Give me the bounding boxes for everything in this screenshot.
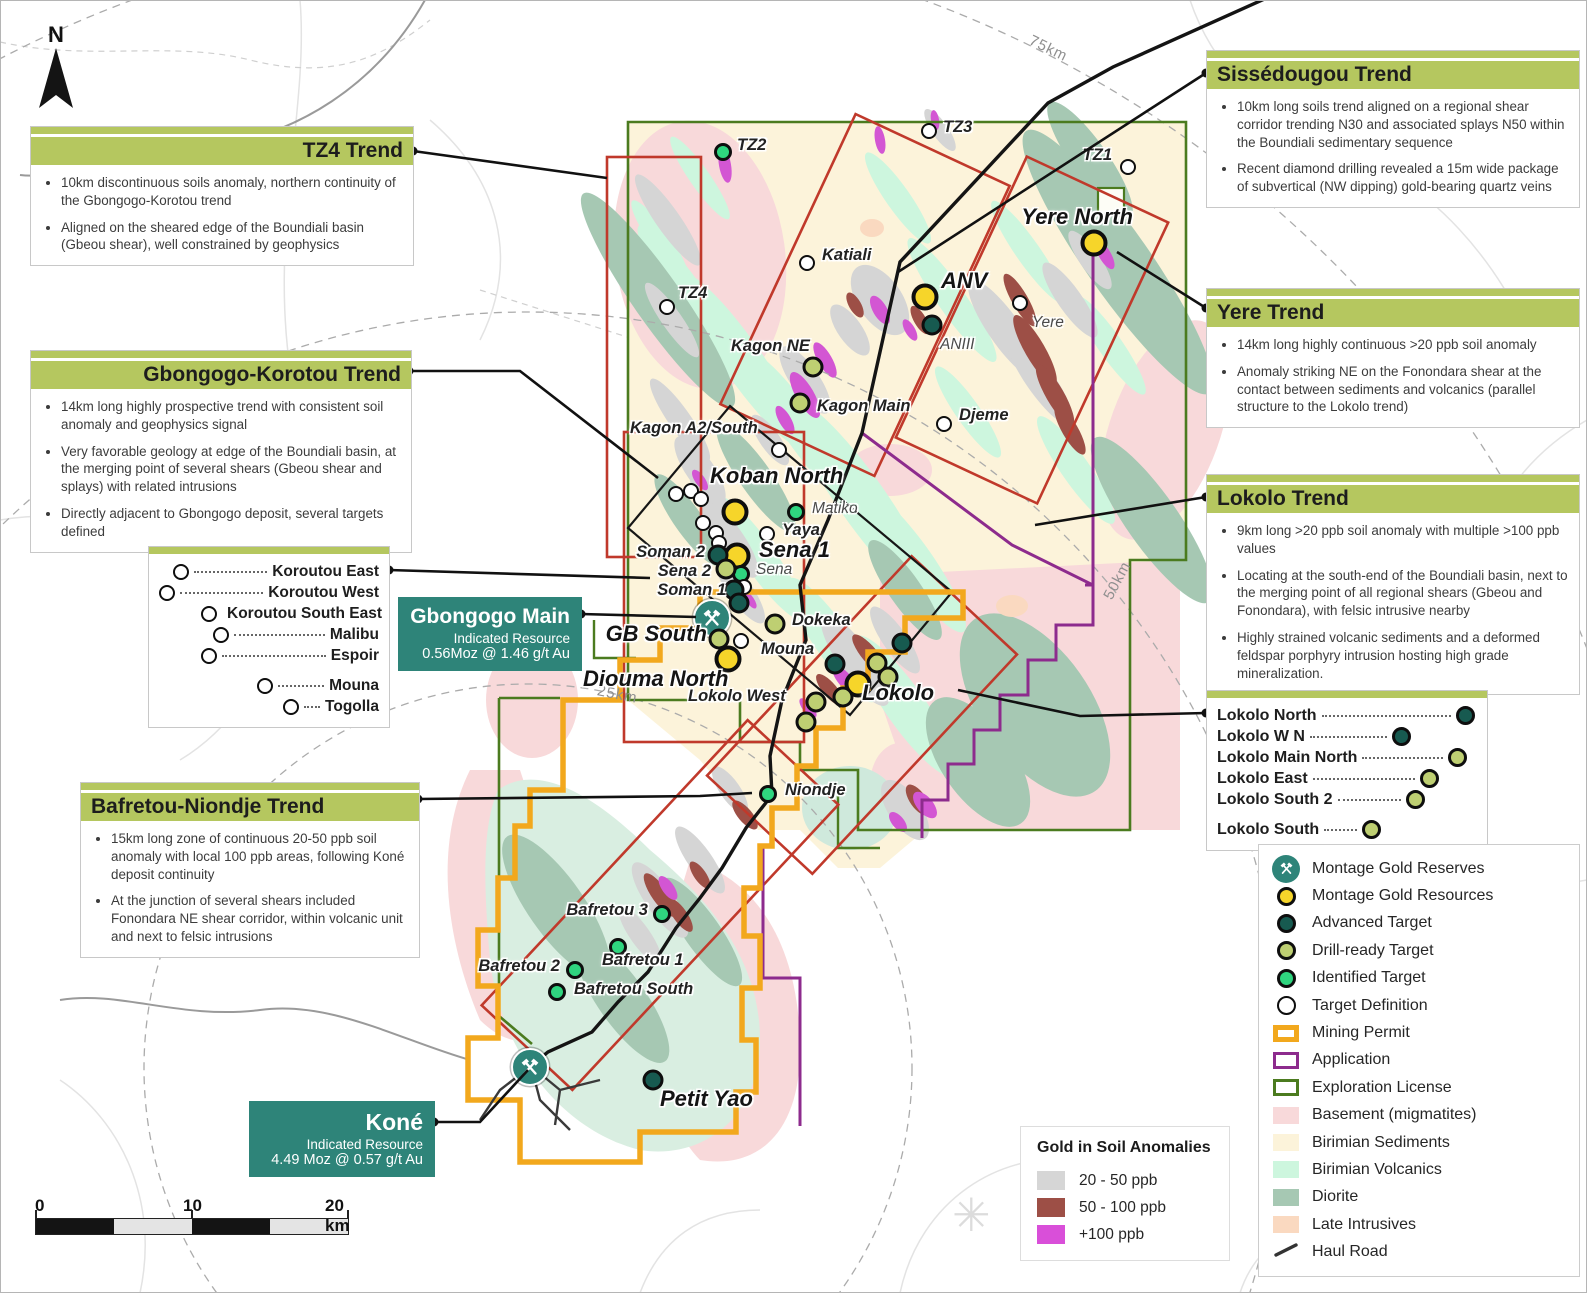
legend-label: Birimian Sediments [1312,1134,1450,1152]
definition-icon [1271,996,1301,1015]
dotted-leader [194,570,267,573]
dotted-leader [304,705,320,708]
target-label: Lokolo Main North [1217,749,1357,767]
callout-bullet: 9km long >20 ppb soil anomaly with multi… [1237,522,1569,558]
callout-title: Yere Trend [1207,299,1579,327]
callout-bullet: Highly strained volcanic sediments and a… [1237,629,1569,682]
identified-icon [1271,969,1301,988]
drillready-target-icon [1362,820,1381,839]
callout-sissedougou-trend: Sissédougou Trend 10km long soils trend … [1206,50,1580,208]
legend-item-haulroad: Haul Road [1271,1238,1567,1265]
dotted-leader [222,654,326,657]
callout-bullets: 10km discontinuous soils anomaly, northe… [61,174,403,254]
sediments-symbol [1273,1134,1299,1151]
definition-symbol [1277,996,1296,1015]
target-row: Lokolo South 2 [1217,789,1477,810]
soil-swatch [1037,1171,1065,1190]
target-label: Lokolo South 2 [1217,791,1333,809]
advanced-target-icon [1392,727,1411,746]
target-row: Koroutou West [159,582,379,603]
soil-swatch [1037,1225,1065,1244]
callout-bullet: 15km long zone of continuous 20-50 ppb s… [111,830,409,883]
north-label: N [36,24,76,46]
definition-target-icon [201,648,217,664]
definition-target-icon [283,699,299,715]
callout-bullet: Anomaly striking NE on the Fonondara she… [1237,363,1569,416]
diorite-icon [1271,1189,1301,1206]
callout-bullets: 10km long soils trend aligned on a regio… [1237,98,1569,196]
legend-item-reserves: Montage Gold Reserves [1271,855,1567,882]
compass-watermark-icon: ✳ [952,1188,991,1242]
resource-class: Indicated Resource [410,631,570,646]
dotted-leader [278,684,324,687]
legend-label: Application [1312,1051,1390,1069]
target-label: Lokolo W N [1217,728,1305,746]
diorite-symbol [1273,1189,1299,1206]
drillready-target-icon [1448,748,1467,767]
permit-symbol [1273,1025,1299,1042]
target-label: Koroutou East [272,563,379,581]
definition-target-icon [213,627,229,643]
dotted-leader [1324,828,1357,831]
advanced-icon [1271,914,1301,933]
target-label: Malibu [330,626,379,644]
north-arrow-icon [36,46,76,114]
sediments-icon [1271,1134,1301,1151]
scale-tick-label: 20 km [325,1196,350,1236]
callout-lokolo-trend: Lokolo Trend 9km long >20 ppb soil anoma… [1206,474,1580,695]
callout-strip [31,127,413,134]
intrusives-symbol [1273,1216,1299,1233]
target-label: Lokolo East [1217,770,1308,788]
drillready-target-icon [1406,790,1425,809]
legend-item-license: Exploration License [1271,1074,1567,1101]
callout-bullets: 14km long highly continuous >20 ppb soil… [1237,336,1569,416]
dotted-leader [234,633,325,636]
legend-item-basement: Basement (migmatites) [1271,1102,1567,1129]
legend-label: Advanced Target [1312,914,1432,932]
target-label: Koroutou South East [227,605,382,623]
target-label: Espoir [331,647,379,665]
resource-box-kone: Koné Indicated Resource 4.49 Moz @ 0.57 … [249,1101,435,1177]
target-list-lokolo: Lokolo NorthLokolo W NLokolo Main NorthL… [1206,690,1488,851]
callout-bullets: 15km long zone of continuous 20-50 ppb s… [111,830,409,946]
definition-target-icon [173,564,189,580]
haulroad-symbol [1273,1242,1299,1263]
legend-label: Exploration License [1312,1079,1452,1097]
scale-segment [36,1219,114,1234]
callout-bullet: Recent diamond drilling revealed a 15m w… [1237,160,1569,196]
advanced-symbol [1277,914,1296,933]
dotted-leader [1313,777,1415,780]
legend-label: Montage Gold Reserves [1312,860,1485,878]
callout-title: Sissédougou Trend [1207,61,1579,89]
callout-strip [81,783,419,790]
permit-icon [1271,1025,1301,1042]
legend-label: Haul Road [1312,1243,1388,1261]
soil-legend-item: 50 - 100 ppb [1037,1194,1213,1221]
target-label: Togolla [325,698,379,716]
callout-bullet: 14km long highly continuous >20 ppb soil… [1237,336,1569,354]
drillready-symbol [1277,941,1296,960]
target-row: Koroutou East [159,561,379,582]
license-symbol [1273,1079,1299,1096]
scale-segment [192,1219,270,1234]
map-legend: Montage Gold ReservesMontage Gold Resour… [1258,844,1580,1277]
resource-value: 4.49 Moz @ 0.57 g/t Au [261,1152,423,1168]
callout-bullet: Very favorable geology at edge of the Bo… [61,443,401,496]
target-row: Togolla [159,696,379,717]
callout-strip [1207,475,1579,482]
definition-target-icon [201,606,217,622]
target-label: Mouna [329,677,379,695]
callout-bullet: 14km long highly prospective trend with … [61,398,401,434]
callout-title: Bafretou-Niondje Trend [81,793,419,821]
resource-symbol [1277,887,1296,906]
legend-item-diorite: Diorite [1271,1184,1567,1211]
callout-bullet: 10km discontinuous soils anomaly, northe… [61,174,403,210]
legend-item-application: Application [1271,1047,1567,1074]
target-row: Lokolo W N [1217,726,1477,747]
target-list-koroutou: Koroutou EastKoroutou WestKoroutou South… [148,546,390,728]
callout-gbongogo-korotou-trend: Gbongogo-Korotou Trend 14km long highly … [30,350,412,553]
box-strip [149,547,389,554]
legend-label: Montage Gold Resources [1312,887,1493,905]
callout-bullet: Directly adjacent to Gbongogo deposit, s… [61,505,401,541]
drillready-icon [1271,941,1301,960]
target-label: Koroutou West [268,584,379,602]
target-row: Mouna [159,675,379,696]
callout-bullet: 10km long soils trend aligned on a regio… [1237,98,1569,151]
target-label: Lokolo South [1217,821,1319,839]
application-icon [1271,1052,1301,1069]
target-row: Lokolo Main North [1217,747,1477,768]
legend-item-identified: Identified Target [1271,965,1567,992]
callout-bullets: 14km long highly prospective trend with … [61,398,401,541]
callout-title: Lokolo Trend [1207,485,1579,513]
scale-bar-segments [35,1218,349,1235]
legend-item-advanced: Advanced Target [1271,910,1567,937]
legend-label: Target Definition [1312,997,1428,1015]
crossed-hammers-icon [1278,860,1295,877]
soil-legend-item: 20 - 50 ppb [1037,1167,1213,1194]
box-strip [1207,691,1487,698]
soil-label: +100 ppb [1079,1226,1144,1244]
callout-title: TZ4 Trend [31,137,413,165]
callout-bullet: At the junction of several shears includ… [111,892,409,945]
legend-item-volcanics: Birimian Volcanics [1271,1156,1567,1183]
legend-item-resource: Montage Gold Resources [1271,882,1567,909]
callout-title: Gbongogo-Korotou Trend [31,361,411,389]
basement-symbol [1273,1107,1299,1124]
legend-item-drillready: Drill-ready Target [1271,937,1567,964]
drillready-target-icon [1420,769,1439,788]
resource-value: 0.56Moz @ 1.46 g/t Au [410,646,570,662]
callout-strip [31,351,411,358]
resource-class: Indicated Resource [261,1137,423,1152]
soil-label: 50 - 100 ppb [1079,1199,1166,1217]
intrusives-icon [1271,1216,1301,1233]
callout-bafretou-niondje-trend: Bafretou-Niondje Trend 15km long zone of… [80,782,420,958]
callout-bullets: 9km long >20 ppb soil anomaly with multi… [1237,522,1569,683]
callout-bullet: Aligned on the sheared edge of the Bound… [61,219,403,255]
target-row: Malibu [159,624,379,645]
legend-label: Identified Target [1312,969,1426,987]
resource-icon [1271,887,1301,906]
volcanics-symbol [1273,1161,1299,1178]
target-row: Lokolo North [1217,705,1477,726]
definition-target-icon [159,585,175,601]
reserves-symbol [1272,855,1300,883]
volcanics-icon [1271,1161,1301,1178]
callout-strip [1207,289,1579,296]
legend-item-intrusives: Late Intrusives [1271,1211,1567,1238]
scale-tick [191,1210,193,1219]
legend-label: Basement (migmatites) [1312,1106,1477,1124]
legend-label: Late Intrusives [1312,1216,1416,1234]
target-row: Koroutou South East [159,603,379,624]
soil-label: 20 - 50 ppb [1079,1172,1157,1190]
target-row: Lokolo East [1217,768,1477,789]
scale-segment [114,1219,192,1234]
dotted-leader [1362,756,1443,759]
reserves-icon [1271,855,1301,883]
haulroad-icon [1271,1242,1301,1263]
identified-symbol [1277,969,1296,988]
basement-icon [1271,1107,1301,1124]
license-icon [1271,1079,1301,1096]
callout-strip [1207,51,1579,58]
soil-legend-item: +100 ppb [1037,1221,1213,1248]
legend-item-permit: Mining Permit [1271,1019,1567,1046]
legend-item-definition: Target Definition [1271,992,1567,1019]
legend-label: Drill-ready Target [1312,942,1434,960]
callout-yere-trend: Yere Trend 14km long highly continuous >… [1206,288,1580,428]
resource-box-gbongogo-main: Gbongogo Main Indicated Resource 0.56Moz… [398,597,582,671]
scale-tick [35,1210,37,1219]
callout-tz4-trend: TZ4 Trend 10km discontinuous soils anoma… [30,126,414,266]
dotted-leader [180,591,263,594]
legend-label: Mining Permit [1312,1024,1410,1042]
legend-label: Birimian Volcanics [1312,1161,1442,1179]
dotted-leader [1310,735,1387,738]
target-row: Espoir [159,645,379,666]
legend-label: Diorite [1312,1188,1358,1206]
deposit-name: Gbongogo Main [410,605,570,629]
target-row: Lokolo South [1217,819,1477,840]
dotted-leader [1322,714,1451,717]
callout-bullet: Locating at the south-end of the Boundia… [1237,567,1569,620]
definition-target-icon [257,678,273,694]
north-arrow: N [36,24,76,119]
legend-item-sediments: Birimian Sediments [1271,1129,1567,1156]
soil-anomalies-legend: Gold in Soil Anomalies 20 - 50 ppb50 - 1… [1020,1126,1230,1261]
advanced-target-icon [1456,706,1475,725]
application-symbol [1273,1052,1299,1069]
target-label: Lokolo North [1217,707,1317,725]
dotted-leader [1338,798,1401,801]
scale-tick [347,1210,349,1219]
soil-swatch [1037,1198,1065,1217]
soil-legend-title: Gold in Soil Anomalies [1037,1139,1213,1157]
scale-bar: 0 10 20 km [35,1196,349,1235]
deposit-name: Koné [261,1109,423,1135]
